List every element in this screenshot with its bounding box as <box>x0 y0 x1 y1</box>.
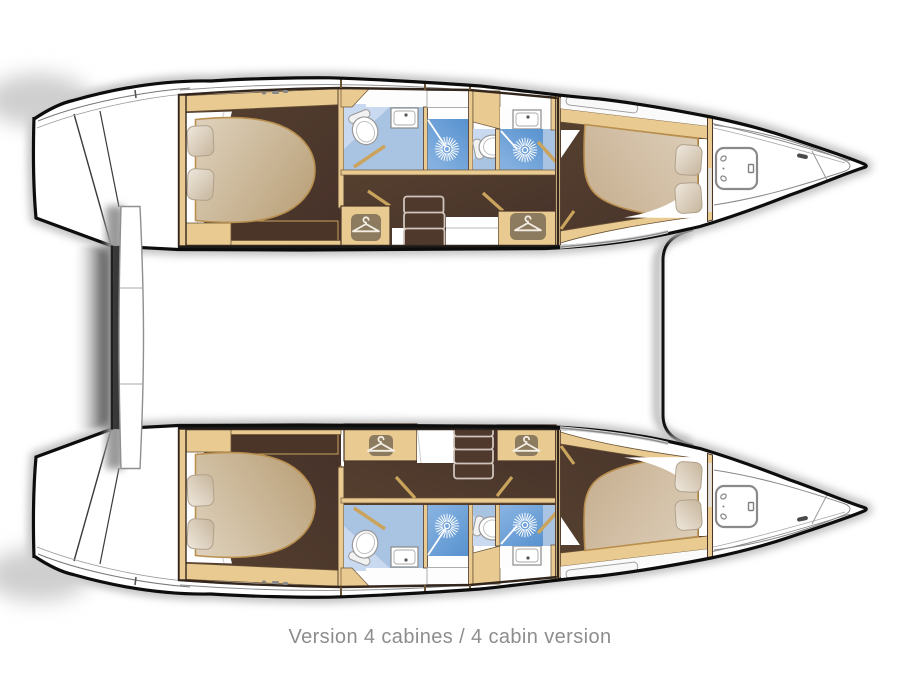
svg-text:Version 4 cabines / 4 cabin ve: Version 4 cabines / 4 cabin version <box>288 626 611 648</box>
